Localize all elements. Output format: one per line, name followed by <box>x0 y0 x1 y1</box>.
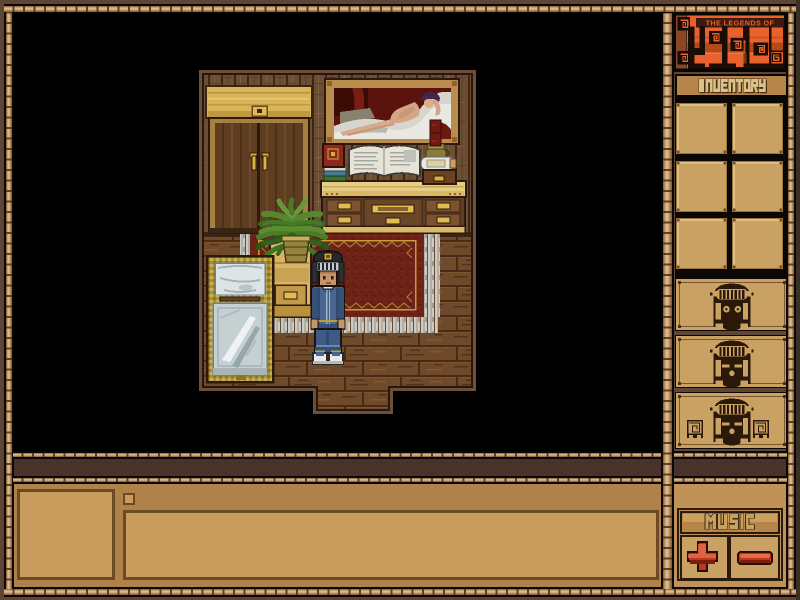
svg-text:THE LEGENDS OF: THE LEGENDS OF <box>706 19 775 28</box>
